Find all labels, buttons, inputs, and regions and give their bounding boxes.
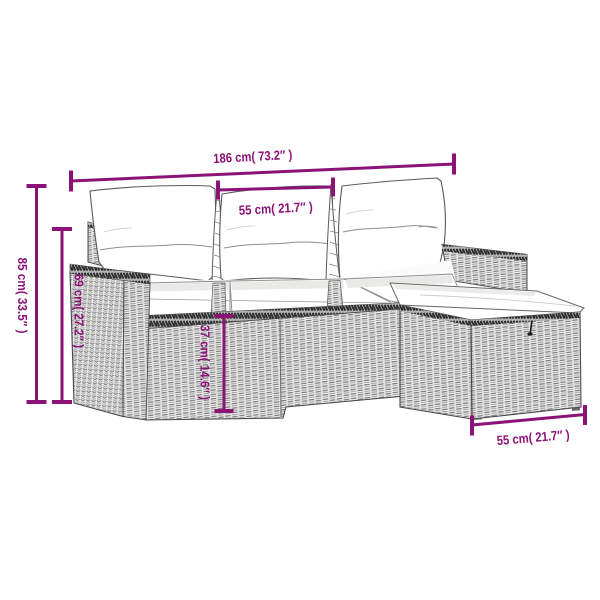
svg-text:37 cm( 14.6″ ): 37 cm( 14.6″ ) <box>198 325 213 400</box>
svg-text:85 cm( 33.5″ ): 85 cm( 33.5″ ) <box>15 258 30 334</box>
svg-text:69 cm( 27.2″ ): 69 cm( 27.2″ ) <box>72 274 87 348</box>
